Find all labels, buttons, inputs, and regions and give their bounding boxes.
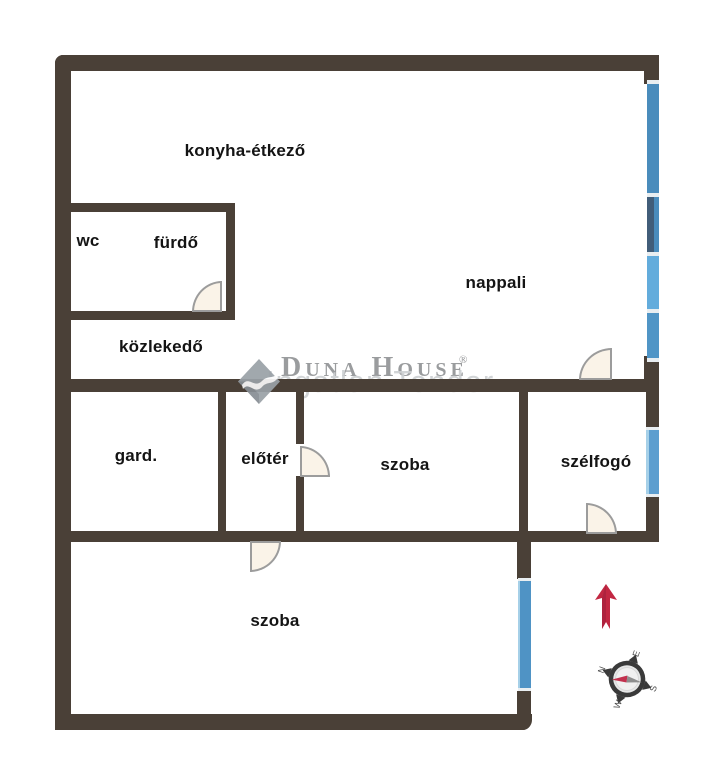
wall-eloter-right-lower	[296, 476, 304, 532]
room-label-gard: gard.	[115, 446, 158, 466]
window-cap	[646, 494, 659, 497]
room-label-eloter: előtér	[241, 449, 289, 469]
room-label-furdo: fürdő	[154, 233, 198, 253]
wall-furdo-bottom	[55, 311, 235, 320]
wall-szoba-bottom-right-lower	[517, 691, 531, 730]
room-label-nappali: nappali	[466, 273, 527, 293]
compass-rose-icon: N E S W	[595, 647, 659, 711]
wall-furdo-top	[55, 203, 235, 212]
dunahouse-diamond-logo-icon	[237, 358, 281, 405]
wall-outer-left	[55, 55, 71, 730]
window-cap	[647, 309, 659, 313]
room-label-konyha-etkezo: konyha-étkező	[185, 141, 306, 161]
window-pane	[647, 84, 659, 193]
window-cap	[647, 252, 659, 256]
wall-middle-row-top	[55, 379, 659, 392]
window-cap	[647, 358, 659, 362]
door-arc-szelfogo	[586, 503, 617, 534]
window-cap	[518, 578, 531, 581]
window-cap	[518, 688, 531, 691]
window-szoba-bottom	[518, 578, 531, 691]
door-arc-szoba-bottom	[250, 541, 281, 572]
room-label-wc: wc	[76, 231, 99, 251]
door-arc-furdo	[192, 281, 222, 312]
north-arrow-icon	[594, 583, 618, 630]
window-szelfogo	[646, 427, 659, 497]
window-pane-dark	[647, 197, 659, 252]
door-arc-nappali	[579, 348, 612, 380]
wall-outer-top	[55, 55, 659, 71]
floor-plan: Duna House ® Ingatlan Tender	[0, 0, 705, 768]
compass-letter-n: N	[596, 665, 608, 675]
wall-eloter-right-upper	[296, 391, 304, 444]
compass-letter-e: E	[631, 649, 642, 658]
window-cap	[647, 193, 659, 197]
wall-szoba-bottom-right-upper	[517, 542, 531, 579]
window-cap	[646, 427, 659, 430]
room-label-szoba-bottom: szoba	[250, 611, 299, 631]
wall-gard-right	[218, 391, 226, 532]
wall-middle-row-bottom	[55, 531, 659, 542]
room-label-kozlekedo: közlekedő	[119, 337, 203, 357]
wall-furdo-right	[226, 203, 235, 320]
wall-szoba-szelfogo	[519, 391, 528, 532]
wall-outer-bottom	[55, 714, 532, 730]
window-nappali-strip	[647, 80, 659, 362]
window-cap	[647, 80, 659, 84]
compass-letter-s: S	[648, 684, 659, 693]
window-pane-mid	[647, 313, 659, 358]
window-pane-light	[647, 256, 659, 309]
room-label-szoba-middle: szoba	[380, 455, 429, 475]
wall-szelfogo-right-upper	[646, 391, 659, 428]
room-label-szelfogo: szélfogó	[561, 452, 632, 472]
door-arc-eloter-szoba	[300, 446, 330, 477]
